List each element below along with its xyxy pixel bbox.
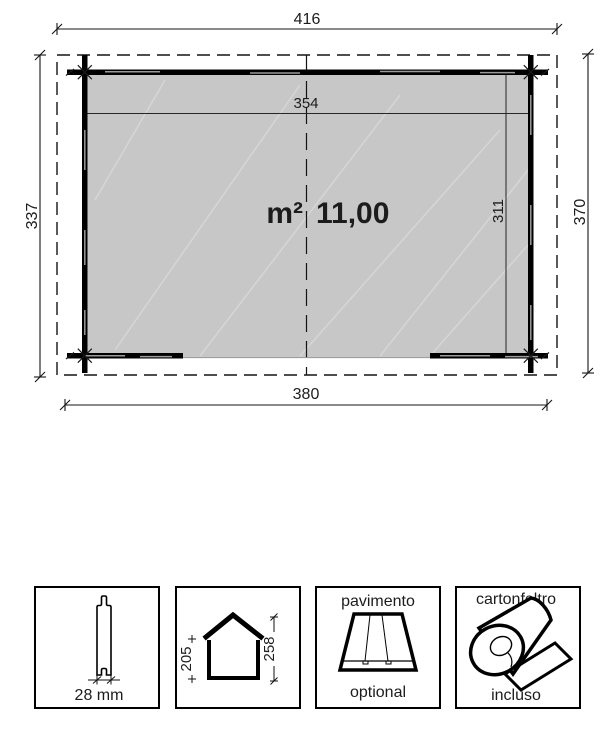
area-unit: m² [266, 197, 303, 230]
dim-left-depth: 337 [24, 203, 41, 230]
felt-availability: incluso [491, 687, 541, 704]
dim-right-depth: 370 [572, 199, 589, 226]
legend-box-floor: pavimento optional [315, 586, 441, 709]
felt-roll-icon [462, 598, 571, 690]
floor-panel-icon [340, 614, 416, 670]
floor-availability: optional [350, 684, 406, 701]
plank-profile-icon [97, 596, 111, 675]
legend-box-elevation: 205 258 [175, 586, 301, 709]
dim-inner-width: 354 [293, 95, 318, 112]
area-value: 11,00 [316, 197, 389, 230]
dim-inner-depth: 311 [490, 199, 507, 223]
eave-height-label: 205 [178, 646, 195, 671]
plank-dimension-line [88, 676, 120, 685]
legend-box-wall-profile: 28 mm [34, 586, 160, 709]
dim-base-width: 380 [293, 386, 320, 403]
product-drawing-page: 416 380 337 370 354 311 m² 11,00 28 mm [0, 0, 613, 729]
legend-box-felt: cartonfeltro incluso [455, 586, 581, 709]
house-elevation-icon [206, 615, 261, 678]
floor-title: pavimento [341, 593, 415, 610]
ridge-height-label: 258 [261, 636, 278, 661]
dim-roof-width: 416 [294, 11, 321, 28]
plank-thickness-label: 28 mm [75, 687, 124, 704]
area-label: m² 11,00 [266, 197, 389, 230]
floor-plan: 416 380 337 370 354 311 m² 11,00 [0, 0, 613, 500]
